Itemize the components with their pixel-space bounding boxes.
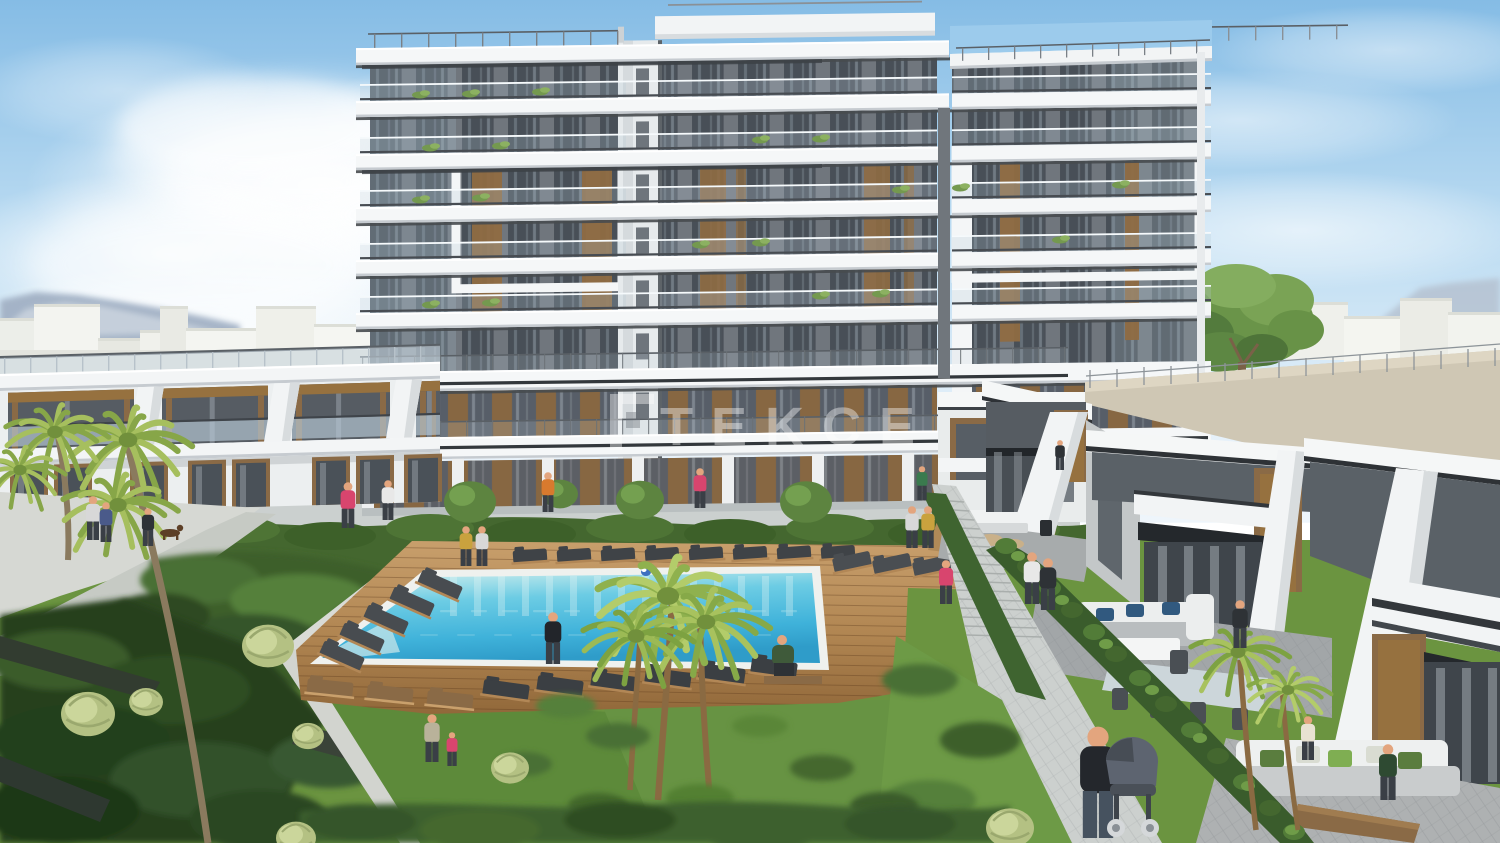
svg-text:TEKCE: TEKCE — [660, 397, 933, 457]
